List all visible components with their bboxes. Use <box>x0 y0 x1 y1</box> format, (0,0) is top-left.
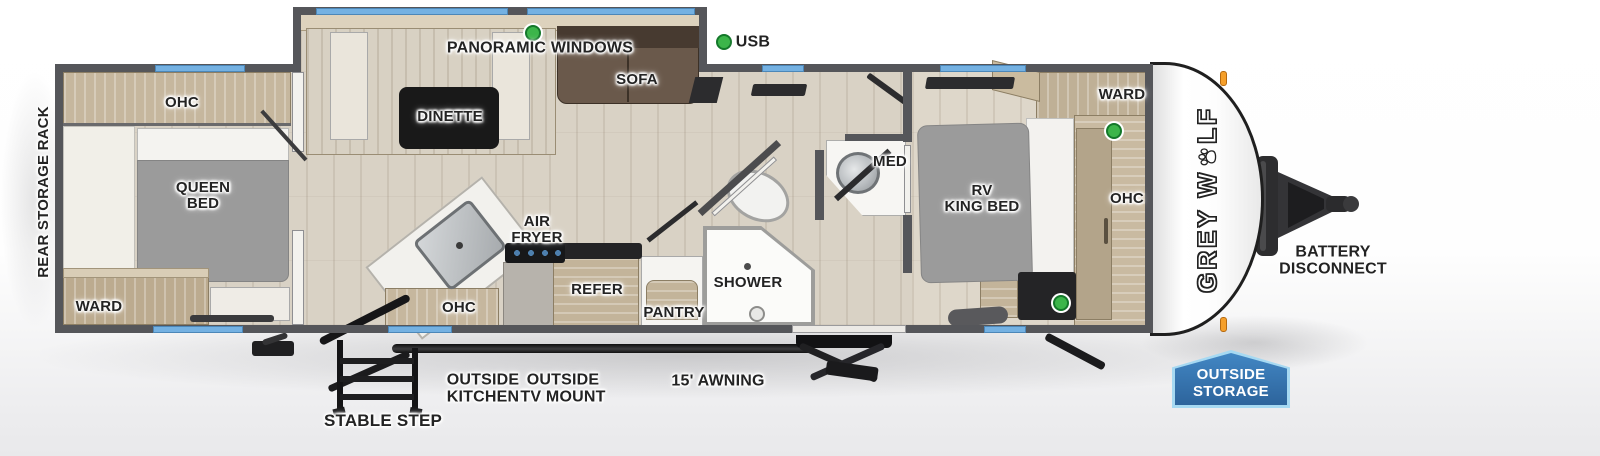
rear-closet-panel <box>63 126 135 278</box>
bed-partition-upper <box>903 72 912 142</box>
dinette-seatback-left <box>330 32 368 140</box>
stable-step-rung-2 <box>340 376 414 382</box>
usb-indicator-icon <box>716 34 732 50</box>
pantry-label: PANTRY <box>643 305 704 321</box>
outside-storage-line1: OUTSIDE <box>1197 366 1266 383</box>
entry-door-opening <box>792 325 906 333</box>
queen-bed-label-line1: QUEEN <box>176 179 230 196</box>
king-bed-sheets <box>1026 118 1074 290</box>
floorplan-canvas: DINETTE SOFA PANORAMIC WINDOWS USB OHC Q… <box>0 0 1600 456</box>
rear-storage-rack-label: REAR STORAGE RACK <box>36 106 52 277</box>
stable-step-label: STABLE STEP <box>324 412 442 430</box>
rear-floor-mat <box>190 315 274 322</box>
stable-step-rung-1 <box>340 358 414 364</box>
battery-disconnect-line1: BATTERY <box>1295 244 1370 261</box>
shower-label: SHOWER <box>714 275 783 291</box>
med-label: MED <box>873 154 907 170</box>
wall-left <box>55 64 63 333</box>
hall-ohc-bar-2 <box>751 84 808 96</box>
slideout-window-right <box>527 8 695 15</box>
shower-drain <box>744 263 751 270</box>
rear-partition-upper <box>292 72 304 152</box>
rear-ohc-shelf-edge <box>63 123 291 126</box>
rear-stabilizer <box>252 341 294 356</box>
slideout-window-left <box>316 8 508 15</box>
kitchen-sink-drain <box>456 242 463 249</box>
rear-ward-top-face <box>63 268 209 278</box>
marker-light-bottom <box>1220 317 1227 332</box>
outside-kitchen-line1: OUTSIDE <box>447 372 520 389</box>
outside-tv-mount-line2: TV MOUNT <box>520 389 605 406</box>
front-ward-label: WARD <box>1099 87 1146 103</box>
rear-bedroom-window-top <box>155 65 245 72</box>
rear-partition-lower <box>292 230 304 325</box>
king-bed-label-line2: KING BED <box>945 198 1020 215</box>
hall-window-top <box>762 65 804 72</box>
hall-ohc-bar-3 <box>925 77 1015 89</box>
bathroom-inner-wall <box>815 150 824 220</box>
front-cap <box>1150 62 1264 336</box>
usb-indicator-icon <box>1106 123 1122 139</box>
outside-storage-line2: STORAGE <box>1193 383 1269 400</box>
marker-light-top <box>1220 71 1227 86</box>
air-fryer-label-line2: FRYER <box>511 229 562 246</box>
kitchen-window-bottom <box>388 326 452 333</box>
refer-label: REFER <box>571 282 623 298</box>
panoramic-windows-label: PANORAMIC WINDOWS <box>447 39 633 56</box>
outside-kitchen-label: OUTSIDE KITCHEN <box>447 372 520 407</box>
usb-label: USB <box>736 33 770 50</box>
sofa-label: SOFA <box>616 72 658 88</box>
slideout-wall-right <box>699 7 707 72</box>
front-bedroom-window-bottom <box>984 326 1026 333</box>
shower-faucet <box>749 306 765 322</box>
kitchen-ohc-label: OHC <box>442 300 476 316</box>
awning-label: 15' AWNING <box>671 372 764 389</box>
outside-tv-mount-label: OUTSIDE TV MOUNT <box>520 372 605 407</box>
rear-ward-label: WARD <box>76 299 123 315</box>
wall-right <box>1145 64 1153 333</box>
queen-bed-label: QUEEN BED <box>176 180 230 212</box>
air-fryer-label: AIR FRYER <box>511 214 562 246</box>
slideout-wall-left <box>293 7 301 72</box>
usb-indicator-icon <box>1053 295 1069 311</box>
battery-disconnect-label: BATTERY DISCONNECT <box>1279 244 1387 279</box>
queen-bed-pillows <box>137 128 289 162</box>
battery-disconnect-line2: DISCONNECT <box>1279 261 1387 278</box>
front-ohc-label: OHC <box>1110 191 1144 207</box>
queen-bed-label-line2: BED <box>187 195 219 212</box>
outside-tv-mount-line1: OUTSIDE <box>527 372 600 389</box>
dinette-label: DINETTE <box>417 109 483 125</box>
rear-bedroom-window-bottom <box>153 326 243 333</box>
stable-step-rung-3 <box>340 394 414 400</box>
bed-partition-mid <box>903 215 912 273</box>
air-fryer-label-line1: AIR <box>524 213 550 230</box>
king-bed-label-line1: RV <box>972 182 993 199</box>
outside-kitchen-line2: KITCHEN <box>447 389 520 406</box>
awning-bar <box>392 344 812 353</box>
rear-ohc-label: OHC <box>165 95 199 111</box>
front-ohc-handle <box>1104 218 1108 244</box>
bathroom-vanity-wall <box>845 134 907 141</box>
front-bedroom-window-top <box>940 65 1026 72</box>
front-tv-cabinet <box>1018 272 1076 320</box>
king-bed-label: RV KING BED <box>945 183 1020 215</box>
